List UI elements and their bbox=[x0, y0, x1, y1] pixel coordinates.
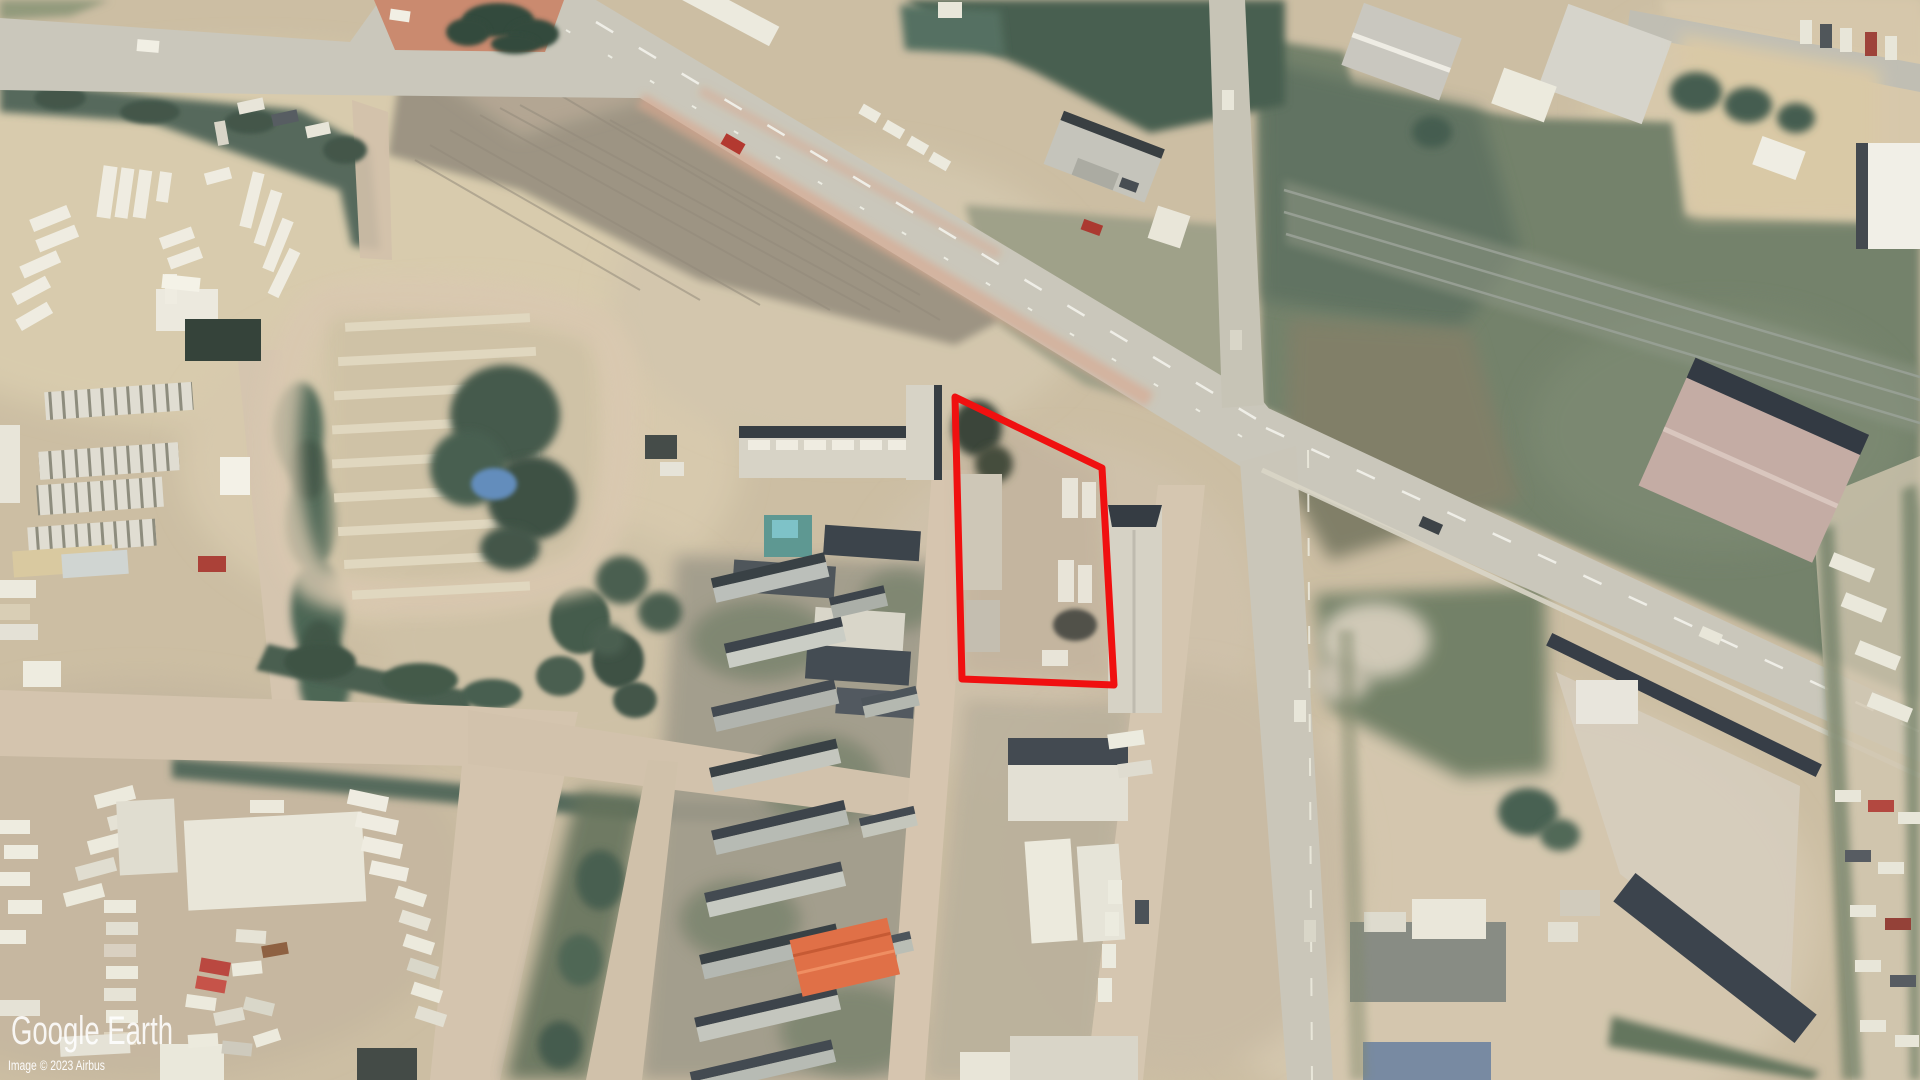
svg-text:Image © 2023 Airbus: Image © 2023 Airbus bbox=[8, 1058, 105, 1073]
svg-text:Google Earth: Google Earth bbox=[11, 1009, 173, 1053]
